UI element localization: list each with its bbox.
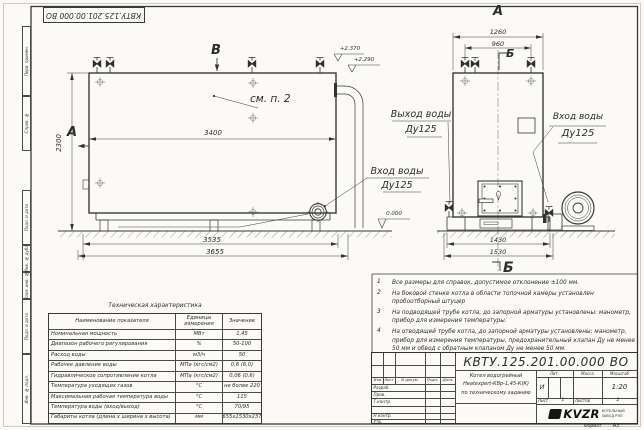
tb-lit-value: И [536, 377, 548, 398]
spec-row-value: 70/95 [222, 402, 261, 412]
tb-header-sign: Подп. [425, 378, 440, 382]
spec-row-value: 50-100 [222, 339, 261, 349]
see-note-label: см. п. 2 [250, 94, 291, 105]
inlet-right-label-line2: Ду125 [550, 129, 606, 139]
title-block: КВТУ.125.201.00.000 ВО Изм Лист N докум.… [371, 352, 638, 424]
format-note: Формат А3 [584, 425, 619, 430]
inlet-right-label-line1: Вход воды [548, 113, 608, 122]
spec-row-name: Температура воды (вход/выход) [49, 402, 175, 412]
spec-row-name: Рабочее давление воды [49, 360, 175, 370]
product-title: Котел водогрейный Heatexpert-КВр-1,45-К(… [456, 372, 536, 397]
section-marker-b-top: Б [506, 48, 514, 59]
spec-table: Наименование показателя Единицы измерени… [48, 313, 262, 424]
kvzr-logo-icon [548, 409, 562, 419]
doc-number: КВТУ.125.201.00.000 ВО [455, 353, 637, 370]
level-mid: +2.290 [349, 58, 379, 64]
tb-sheets-value: 2 [600, 399, 636, 404]
drawing-sheet: { "drawing": { "number": "КВТУ.125.201.0… [0, 0, 644, 430]
spec-row-name: Номинальная мощность [49, 329, 175, 339]
tb-role-utv: Утв. [374, 420, 383, 424]
spec-row-value: не более 220 [222, 381, 261, 391]
logo-text: KVZR [563, 407, 599, 421]
spec-row-name: Максимальная рабочая температура воды [49, 392, 175, 402]
product-line1: Котел водогрейный [456, 372, 536, 380]
spec-row-name: Расход воды [49, 350, 175, 360]
spec-col-name: Наименование показателя [49, 314, 175, 329]
main-view [58, 54, 429, 260]
product-line2: Heatexpert-КВр-1,45-К(К) [456, 380, 536, 388]
spec-row-units: % [175, 339, 222, 349]
dim-2300: 2300 [56, 128, 66, 158]
tb-sheet-value: 1 [556, 399, 570, 404]
tb-header-izm: Изм [372, 378, 383, 382]
spec-row-name: Диапазон рабочего регулирования [49, 339, 175, 349]
frame-label-vzam-inv: Взам. инв. № [22, 272, 31, 299]
spec-row-value: 115 [222, 392, 261, 402]
view-title-a: А [490, 5, 506, 18]
tb-sheet-label: Лист [538, 399, 548, 403]
spec-row-units: м3/ч [175, 350, 222, 360]
tb-scale-value: 1:20 [602, 377, 637, 398]
tb-line [372, 419, 455, 420]
tb-header-list: Лист [383, 378, 395, 382]
dim-960: 960 [475, 41, 521, 48]
company-name: КОТЕЛЬНЫЙ ЗАВОД РЭП [602, 409, 625, 418]
dim-1430: 1430 [475, 237, 521, 244]
dim-3535: 3535 [187, 237, 237, 244]
top-stamp-number: КВТУ.125.201.00.000 ВО [46, 11, 141, 20]
tb-role-nkontr: Н.контр. [374, 414, 392, 418]
frame-label-podp-data-2: Подп. и дата [22, 299, 31, 354]
spec-row-name: Габариты котла (длина х ширина х высота) [49, 413, 175, 423]
inlet-label-line1: Вход воды [366, 167, 428, 177]
spec-row-units: МВт [175, 329, 222, 339]
dim-3400: 3400 [190, 130, 236, 137]
note-1: 1Все размеры для справок, допустимое отк… [377, 279, 635, 287]
tb-header-doc: N докум. [395, 378, 425, 382]
spec-row-name: Гидравлическое сопротивление котла [49, 371, 175, 381]
notes-list: 1Все размеры для справок, допустимое отк… [377, 279, 635, 356]
spec-row-units: °С [175, 381, 222, 391]
tb-line [455, 403, 536, 404]
spec-row-value: 0,06 (0,6) [222, 371, 261, 381]
spec-row-name: Температура уходящих газов [49, 381, 175, 391]
tb-role-prov: Пров. [374, 393, 386, 397]
spec-row-units: МПа (кгс/см2) [175, 371, 222, 381]
tb-role-razrab: Разраб. [374, 386, 390, 390]
tb-scale-label: Масштаб [602, 372, 637, 376]
frame-label-podp-data-1: Подп. и дата [22, 190, 31, 245]
note-3: 3На подводящей трубе котла, до запорной … [377, 309, 635, 326]
spec-row-units: мм [175, 413, 222, 423]
spec-row-units: °С [175, 392, 222, 402]
section-marker-a: А [64, 126, 80, 139]
outlet-label-line2: Ду125 [396, 125, 446, 135]
spec-col-units: Единицы измерения [175, 314, 222, 329]
frame-label-perv-primen: Перв. примен. [22, 26, 31, 96]
level-top: +2.370 [335, 47, 365, 53]
spec-row-value: 50 [222, 350, 261, 360]
spec-table-title: Техническая характеристика [48, 303, 262, 309]
section-marker-b-bottom: Б [503, 261, 514, 275]
tb-line [372, 365, 455, 366]
tb-line [560, 377, 561, 398]
tb-lit-label: Лит. [536, 372, 573, 376]
spec-row-value: 0,6 (6,0) [222, 360, 261, 370]
spec-row-units: °С [175, 402, 222, 412]
level-zero: 0.000 [380, 212, 408, 218]
note-4: 4На отводящей трубе котла, до запорной а… [377, 328, 635, 353]
spec-row-value: 1,45 [222, 329, 261, 339]
company-logo-block: KVZR КОТЕЛЬНЫЙ ЗАВОД РЭП [537, 405, 637, 423]
note-2: 2На боковой стенке котла в области топоч… [377, 290, 635, 307]
spec-col-value: Значение [222, 314, 261, 329]
spec-row-units: МПа (кгс/см2) [175, 360, 222, 370]
tb-sheets-label: Листов [575, 399, 590, 403]
tb-line [548, 377, 549, 398]
spec-row-value: 3655х1530х2370 [222, 413, 261, 423]
tb-line [372, 406, 455, 407]
frame-label-inv-podl: Инв. № подл. [22, 354, 31, 424]
frame-label-inv-dubl: Инв. № дубл. [22, 245, 31, 272]
dim-1530: 1530 [475, 249, 521, 256]
inlet-label-line2: Ду125 [366, 181, 428, 191]
section-marker-b: В [208, 44, 224, 57]
tb-role-tkontr: Т.контр. [374, 400, 392, 404]
outlet-label-line1: Выход воды [390, 110, 452, 120]
product-line3: по техническому заданию [456, 389, 536, 397]
tb-header-date: Дата [440, 378, 455, 382]
frame-label-sprav-n: Справ. № [22, 96, 31, 151]
dim-1260: 1260 [475, 29, 521, 36]
tb-mass-label: Масса [573, 372, 602, 376]
dim-3655: 3655 [190, 249, 240, 256]
top-filing-stamp: КВТУ.125.201.00.000 ВО [43, 7, 145, 23]
